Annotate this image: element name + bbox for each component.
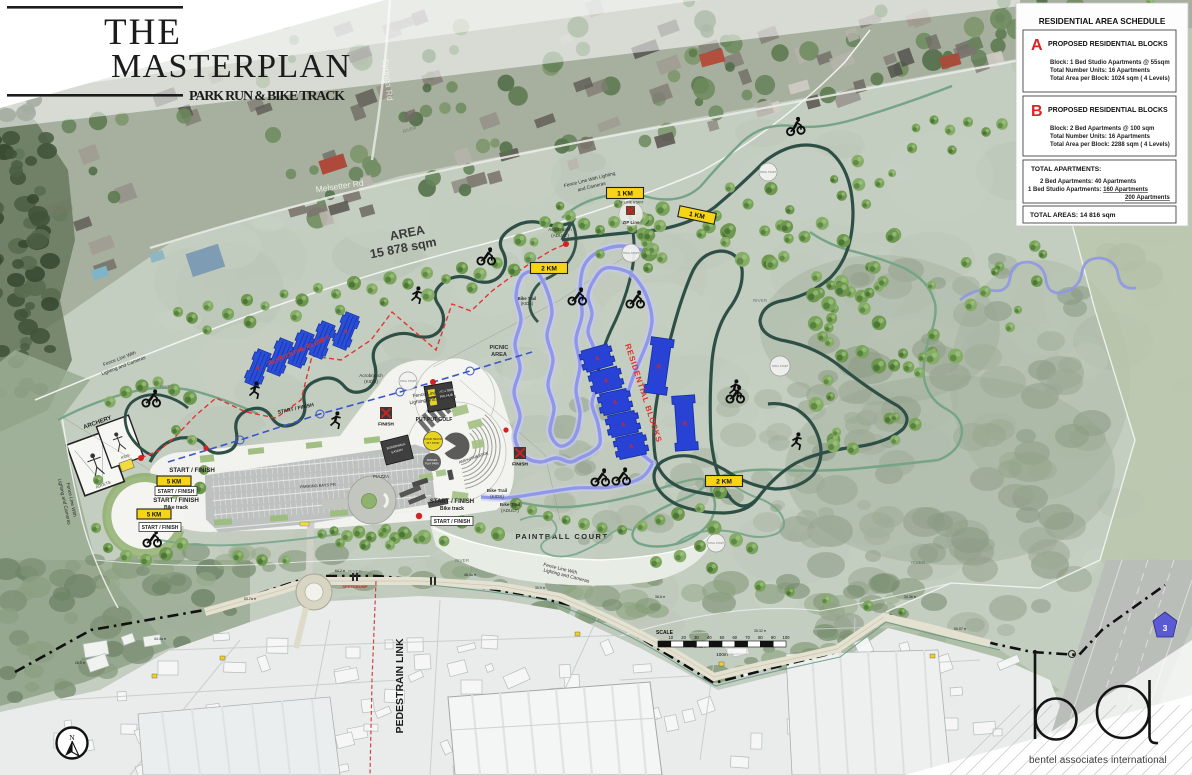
svg-text:PARK RUN & BIKE TRACK: PARK RUN & BIKE TRACK [189,89,345,104]
svg-text:START / FINISH: START / FINISH [434,519,471,525]
svg-text:44.4a ●: 44.4a ● [154,637,166,641]
svg-text:TOTAL AREAS: 14 816 sqm: TOTAL AREAS: 14 816 sqm [1030,212,1116,219]
svg-text:20: 20 [681,635,686,640]
svg-text:PLAY PARK: PLAY PARK [425,462,439,466]
svg-text:2 Bed Apartments: 40 Apartment: 2 Bed Apartments: 40 Apartments [1040,179,1137,185]
svg-text:RIVER: RIVER [160,384,175,389]
svg-text:MASTERPLAN: MASTERPLAN [111,48,351,85]
svg-text:PIT STOP: PIT STOP [427,441,440,445]
svg-text:90: 90 [771,635,776,640]
svg-text:Acrobranch: Acrobranch [359,373,383,378]
svg-text:RIVER: RIVER [348,569,363,574]
svg-text:START / FINISH: START / FINISH [430,499,474,505]
svg-text:2 KM: 2 KM [541,265,557,272]
svg-text:30.9 ●: 30.9 ● [535,586,545,590]
svg-text:PAINTBALL COURT: PAINTBALL COURT [515,532,608,541]
svg-text:Total Area per Block: 2288 sqm: Total Area per Block: 2288 sqm ( 4 Level… [1050,142,1170,148]
svg-text:2 KM: 2 KM [716,478,732,485]
svg-text:(KIDS): (KIDS) [521,301,534,306]
svg-text:Bike Trail: Bike Trail [487,488,507,493]
svg-text:FINISH: FINISH [512,462,528,468]
svg-text:35.32 ●: 35.32 ● [754,629,766,633]
svg-text:bentel associates internationa: bentel associates international [1029,755,1167,766]
svg-text:28.0 ●: 28.0 ● [75,661,85,665]
svg-text:5 KM: 5 KM [147,512,161,518]
svg-text:RESIDENTIAL AREA SCHEDULE: RESIDENTIAL AREA SCHEDULE [1039,17,1166,26]
svg-text:PIAZZA: PIAZZA [373,474,390,479]
svg-text:64.2 ●: 64.2 ● [335,569,345,573]
svg-text:(ADULT): (ADULT) [501,508,519,513]
svg-text:PEDESTRAIN LINK: PEDESTRAIN LINK [394,638,406,734]
svg-text:THE: THE [104,12,182,53]
svg-text:PROPOSED RESIDENTIAL BLOCKS: PROPOSED RESIDENTIAL BLOCKS [1048,41,1168,48]
svg-text:34.36 ●: 34.36 ● [904,595,916,599]
svg-text:TRIAL START: TRIAL START [708,541,725,545]
svg-text:KIDDIES: KIDDIES [427,458,438,462]
svg-text:Bike Trail: Bike Trail [500,502,520,507]
svg-text:200 Apartments: 200 Apartments [1125,195,1170,201]
svg-text:(ADULT): (ADULT) [551,233,569,238]
svg-text:B: B [1031,103,1043,120]
svg-text:TRIAL START: TRIAL START [623,251,640,255]
svg-text:Total Number Units: 16 Apartme: Total Number Units: 16 Apartments [1050,134,1151,140]
svg-text:TOTAL APARTMENTS:: TOTAL APARTMENTS: [1031,166,1101,173]
svg-text:70: 70 [745,635,750,640]
svg-text:100m: 100m [716,652,728,657]
svg-text:Block: 2 Bed Apartments @ 100: Block: 2 Bed Apartments @ 100 sqm [1050,126,1154,132]
svg-text:RIVER: RIVER [753,298,768,303]
svg-text:50.07 ●: 50.07 ● [954,627,966,631]
svg-text:1 KM: 1 KM [617,190,633,197]
svg-text:START / FINISH: START / FINISH [169,467,215,474]
svg-text:TRIAL START: TRIAL START [772,364,789,368]
svg-text:ZIP Line: ZIP Line [623,220,641,225]
svg-text:TRIAL START: TRIAL START [760,170,777,174]
svg-text:FINISH: FINISH [378,422,394,428]
svg-text:Total Number Units: 16 Apartme: Total Number Units: 16 Apartments [1050,68,1151,74]
svg-text:Total Area per Block: 1024 sqm: Total Area per Block: 1024 sqm ( 4 Level… [1050,76,1170,82]
svg-text:(KIDS): (KIDS) [364,379,378,384]
svg-text:AREA: AREA [491,352,507,358]
svg-text:5 KM: 5 KM [167,479,181,485]
svg-text:N: N [69,733,75,742]
svg-text:100: 100 [783,635,791,640]
svg-text:START / FINISH: START / FINISH [153,497,199,504]
svg-text:3: 3 [1163,623,1168,633]
svg-text:38.8 ●: 38.8 ● [655,595,665,599]
svg-text:START / FINISH: START / FINISH [142,525,179,531]
svg-text:1 Bed Studio Apartments: 160 A: 1 Bed Studio Apartments: 160 Apartments [1028,187,1149,193]
svg-text:A: A [1031,37,1043,54]
svg-text:TRIAL START: TRIAL START [400,379,417,383]
svg-text:PICNIC: PICNIC [490,345,509,351]
svg-text:50: 50 [720,635,725,640]
svg-text:(KIDS): (KIDS) [490,494,504,499]
svg-text:30: 30 [694,635,699,640]
svg-text:ZIP LINE START: ZIP LINE START [618,201,643,205]
svg-text:60: 60 [732,635,737,640]
svg-text:PROPOSED RESIDENTIAL BLOCKS: PROPOSED RESIDENTIAL BLOCKS [1048,107,1168,114]
svg-text:START / FINISH: START / FINISH [158,489,195,495]
svg-text:48.3a ●: 48.3a ● [464,573,476,577]
svg-text:SPEEDBUMP: SPEEDBUMP [342,584,368,589]
svg-text:RIVER: RIVER [455,558,470,563]
svg-text:Acrobranch: Acrobranch [548,227,572,232]
svg-text:PUT PUT GOLF: PUT PUT GOLF [416,417,453,423]
svg-text:Block: 1 Bed Studio Apartments: Block: 1 Bed Studio Apartments @ 55sqm [1050,60,1170,66]
svg-text:Bike track: Bike track [164,505,188,511]
svg-text:40: 40 [707,635,712,640]
svg-text:Bike track: Bike track [440,506,464,512]
svg-text:RIVER: RIVER [911,560,926,565]
svg-text:53.7a ●: 53.7a ● [244,597,256,601]
svg-text:80: 80 [758,635,763,640]
svg-text:10: 10 [668,635,673,640]
